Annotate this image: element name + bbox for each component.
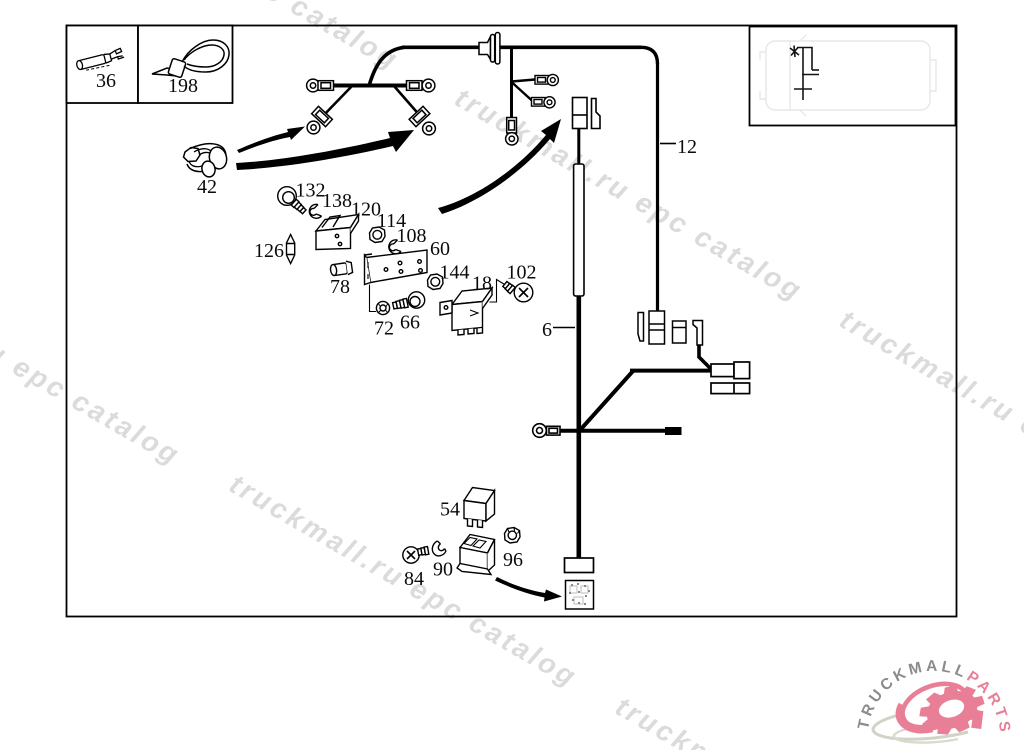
svg-text:144: 144: [440, 262, 470, 284]
svg-text:96: 96: [503, 549, 523, 571]
svg-text:truckmall.ru epc catalog: truckmall.ru epc catalog: [835, 304, 1024, 529]
svg-text:66: 66: [400, 312, 420, 334]
svg-text:6: 6: [542, 319, 552, 341]
svg-text:12: 12: [677, 136, 697, 158]
svg-text:132: 132: [296, 180, 326, 202]
svg-text:198: 198: [168, 75, 198, 97]
svg-text:42: 42: [197, 176, 217, 198]
svg-text:18: 18: [472, 273, 492, 295]
svg-text:102: 102: [507, 262, 537, 284]
svg-text:60: 60: [430, 238, 450, 260]
svg-text:108: 108: [397, 225, 427, 247]
svg-text:78: 78: [330, 276, 350, 298]
svg-text:truckmall.ru epc catalog: truckmall.ru epc catalog: [610, 691, 969, 750]
svg-text:138: 138: [322, 190, 352, 212]
svg-text:126: 126: [254, 240, 284, 262]
svg-text:84: 84: [404, 568, 424, 590]
svg-text:72: 72: [374, 318, 394, 340]
svg-text:36: 36: [96, 70, 116, 92]
svg-text:90: 90: [433, 559, 453, 581]
svg-text:54: 54: [440, 499, 460, 521]
svg-text:truckmall.ru epc catalog: truckmall.ru epc catalog: [0, 246, 186, 471]
